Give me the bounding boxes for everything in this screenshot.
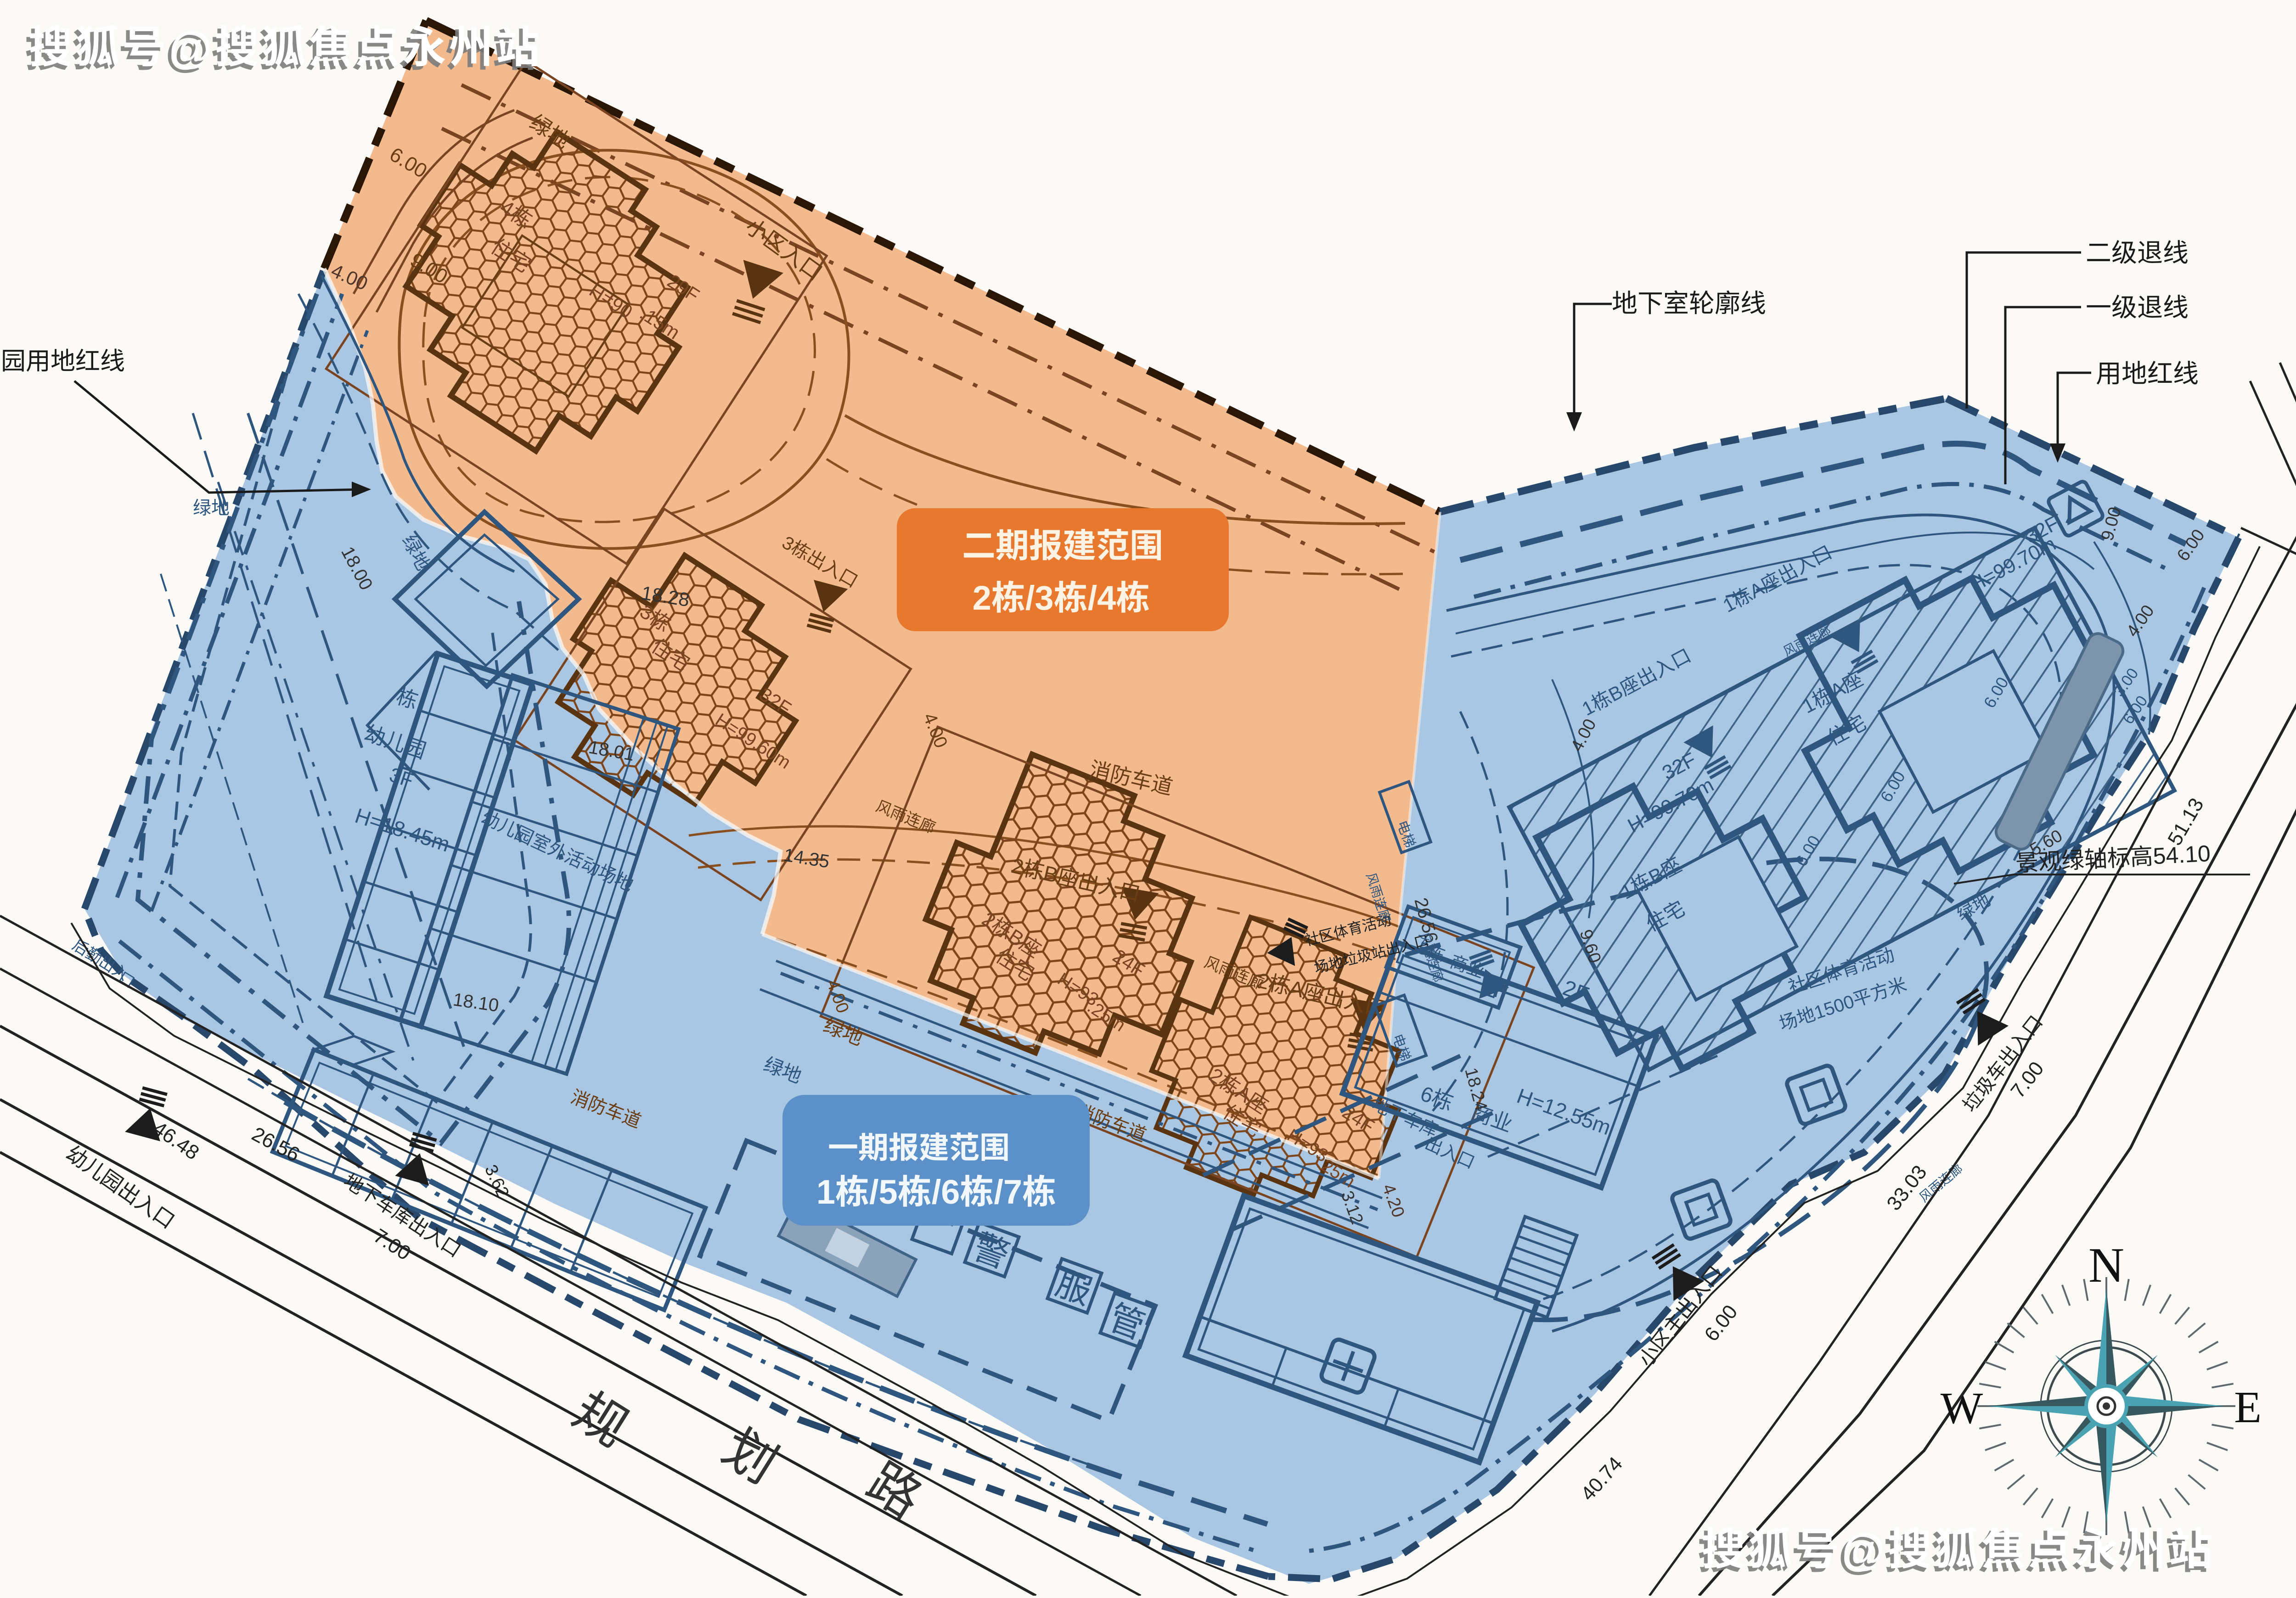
svg-text:二期报建范围: 二期报建范围 (962, 519, 1163, 567)
svg-text:一级退线: 一级退线 (2086, 287, 2189, 324)
svg-text:搜狐号@搜狐焦点永州站: 搜狐号@搜狐焦点永州站 (28, 11, 543, 75)
svg-text:2栋/3栋/4栋: 2栋/3栋/4栋 (973, 571, 1150, 620)
svg-text:E: E (2234, 1383, 2262, 1432)
svg-text:1栋/5栋/6栋/7栋: 1栋/5栋/6栋/7栋 (816, 1165, 1056, 1214)
svg-text:用地红线: 用地红线 (2096, 353, 2199, 390)
svg-text:N: N (2088, 1238, 2124, 1293)
svg-text:二级退线: 二级退线 (2086, 232, 2189, 269)
svg-text:一期报建范围: 一期报建范围 (828, 1123, 1010, 1167)
svg-text:搜狐号@搜狐焦点永州站: 搜狐号@搜狐焦点永州站 (1701, 1514, 2216, 1577)
svg-text:园用地红线: 园用地红线 (1, 341, 125, 377)
svg-text:地下室轮廓线: 地下室轮廓线 (1612, 283, 1766, 320)
svg-text:W: W (1941, 1384, 1983, 1433)
